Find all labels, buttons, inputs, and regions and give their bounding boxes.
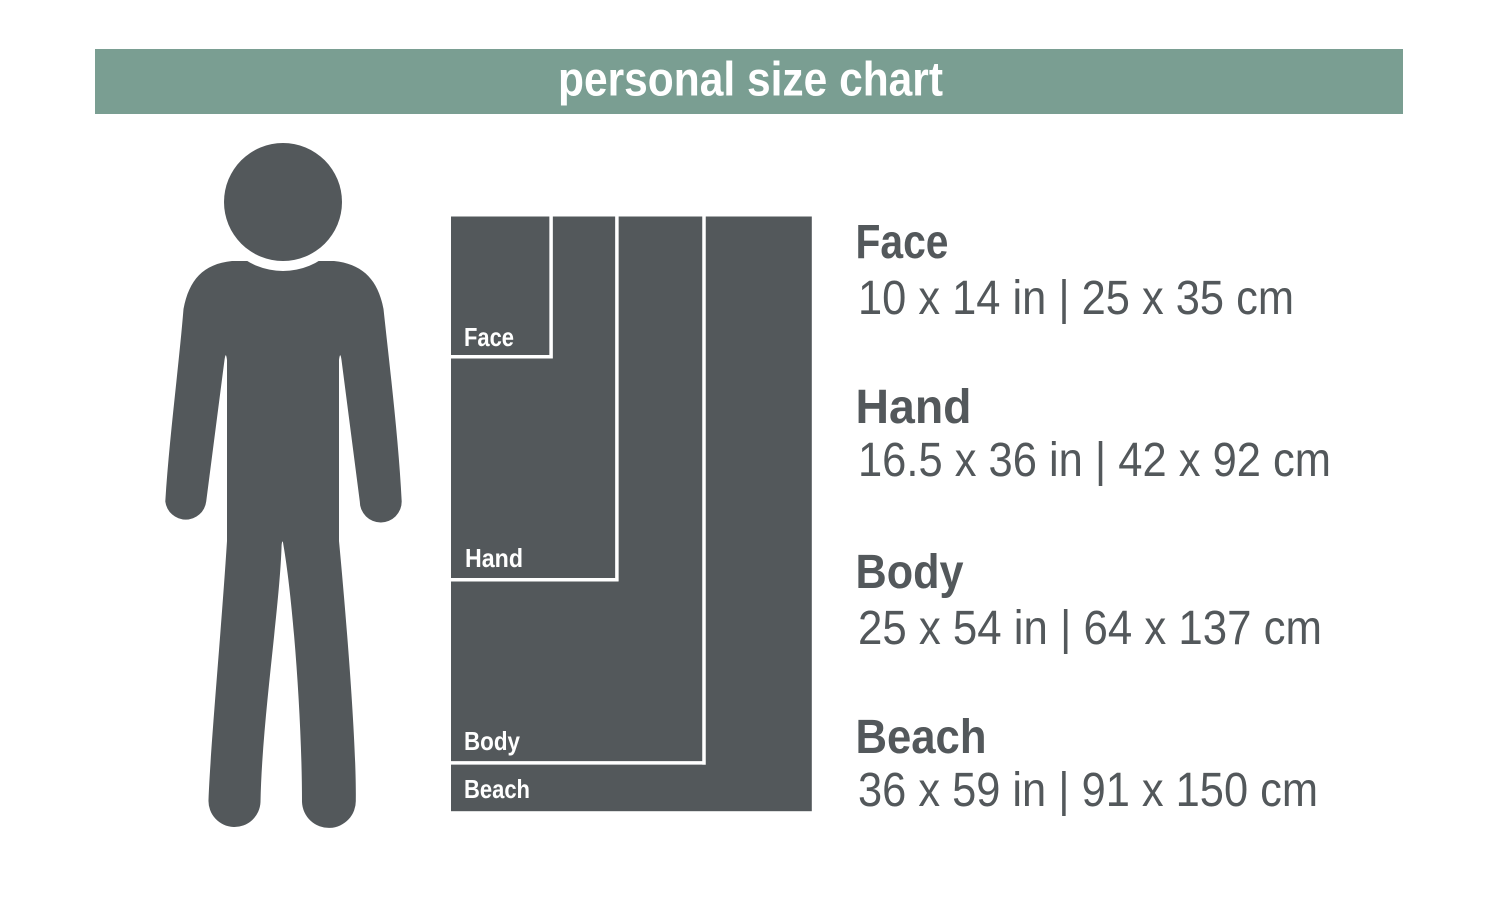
svg-text:Hand: Hand <box>856 381 972 434</box>
svg-text:Beach: Beach <box>464 774 530 804</box>
svg-text:Beach: Beach <box>856 711 987 764</box>
svg-text:Hand: Hand <box>465 543 523 573</box>
svg-text:25 x 54 in | 64 x 137 cm: 25 x 54 in | 64 x 137 cm <box>858 602 1322 655</box>
svg-text:Face: Face <box>856 216 949 269</box>
svg-text:Body: Body <box>464 726 520 756</box>
svg-text:Body: Body <box>856 546 964 599</box>
svg-text:10 x 14 in | 25 x 35 cm: 10 x 14 in | 25 x 35 cm <box>858 272 1294 325</box>
svg-text:personal size chart: personal size chart <box>558 54 943 107</box>
svg-text:Face: Face <box>464 322 514 352</box>
svg-text:36 x 59 in | 91 x 150 cm: 36 x 59 in | 91 x 150 cm <box>858 764 1318 817</box>
svg-text:16.5 x 36 in | 42 x 92 cm: 16.5 x 36 in | 42 x 92 cm <box>858 434 1331 487</box>
